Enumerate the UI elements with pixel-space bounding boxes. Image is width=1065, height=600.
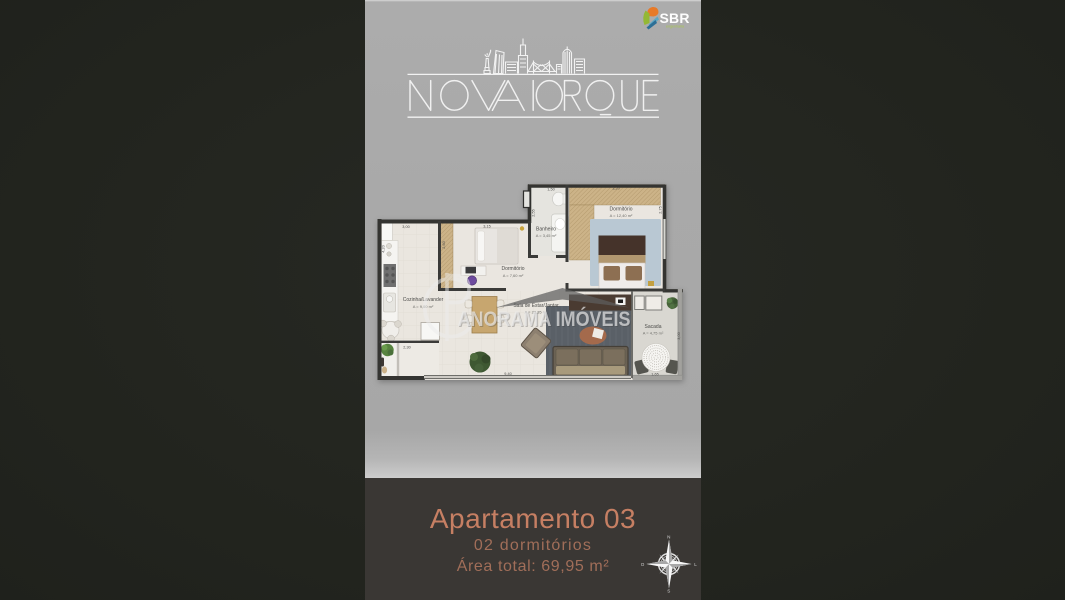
- svg-text:N: N: [667, 535, 670, 540]
- svg-text:2,60: 2,60: [442, 241, 446, 248]
- svg-text:A = 3,45 m²: A = 3,45 m²: [536, 233, 557, 238]
- svg-text:3,15: 3,15: [483, 225, 490, 229]
- svg-text:L: L: [694, 562, 697, 567]
- svg-text:engenharia: engenharia: [666, 25, 684, 29]
- svg-text:9,40: 9,40: [504, 372, 511, 376]
- svg-text:Banheiro: Banheiro: [536, 227, 556, 233]
- svg-text:Cozinha/Lavander: Cozinha/Lavander: [403, 297, 444, 303]
- svg-text:A = 12,40 m²: A = 12,40 m²: [610, 213, 633, 218]
- svg-text:2,55: 2,55: [532, 209, 536, 216]
- svg-text:2,30: 2,30: [403, 346, 410, 350]
- svg-text:3,00: 3,00: [402, 225, 409, 229]
- svg-text:3,00: 3,00: [677, 332, 681, 339]
- svg-text:A = 7,60 m²: A = 7,60 m²: [503, 273, 524, 278]
- svg-text:1,65: 1,65: [651, 373, 658, 377]
- svg-text:1,50: 1,50: [547, 188, 554, 192]
- svg-text:S: S: [667, 589, 670, 594]
- svg-text:2,75: 2,75: [659, 206, 663, 213]
- svg-text:3,20: 3,20: [612, 187, 619, 191]
- svg-text:O: O: [641, 562, 645, 567]
- svg-text:Dormitório: Dormitório: [501, 266, 524, 272]
- svg-text:4,20: 4,20: [382, 245, 386, 252]
- svg-text:A = 4,75 m²: A = 4,75 m²: [643, 331, 664, 336]
- svg-text:Sacada: Sacada: [645, 324, 662, 330]
- svg-text:ANORAMA IMÓVEIS: ANORAMA IMÓVEIS: [458, 306, 631, 331]
- svg-text:Dormitório: Dormitório: [609, 207, 632, 213]
